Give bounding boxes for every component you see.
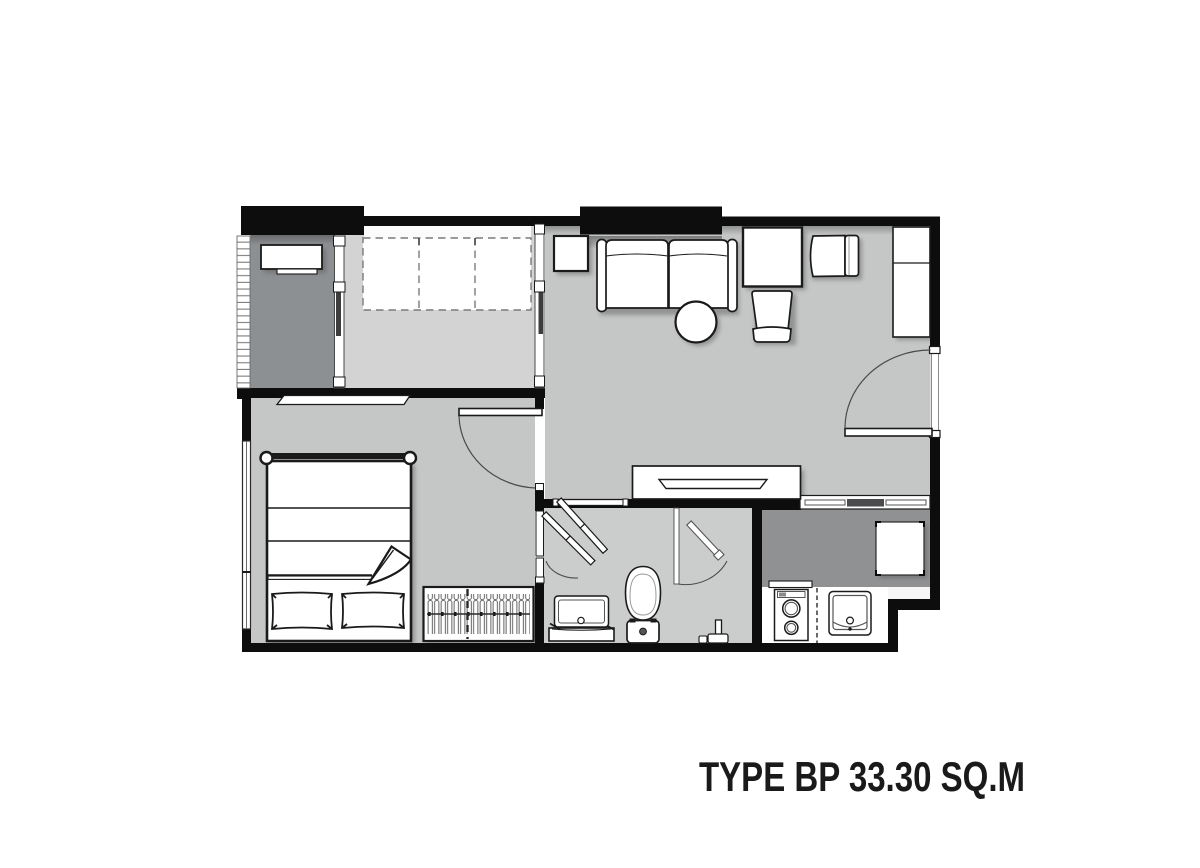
svg-text:TYPE BP 33.30 SQ.M: TYPE BP 33.30 SQ.M xyxy=(699,753,1025,800)
